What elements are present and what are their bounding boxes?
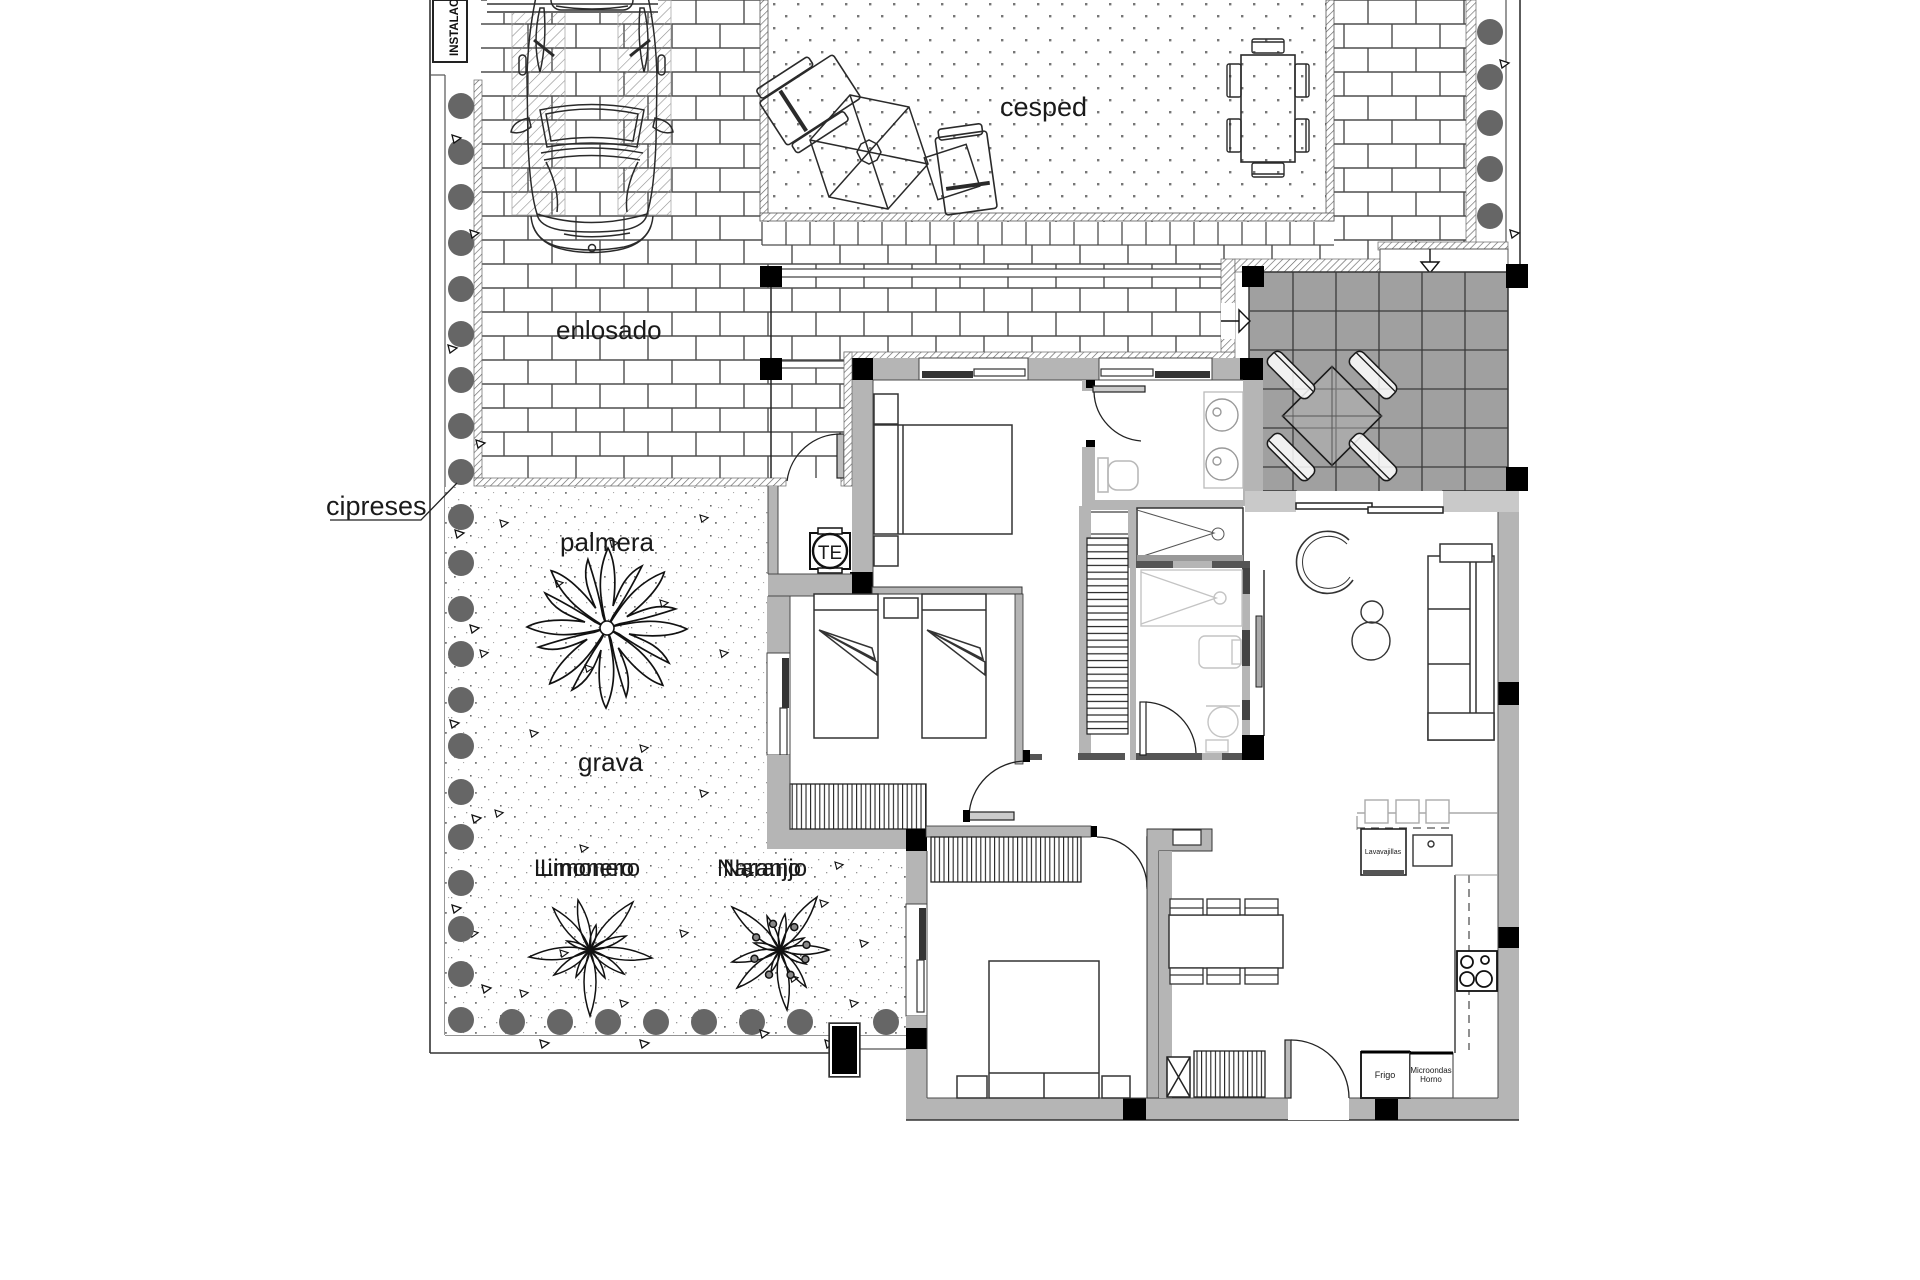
svg-text:grava: grava bbox=[578, 747, 644, 777]
svg-text:cesped: cesped bbox=[1000, 92, 1087, 122]
svg-text:Naranjo: Naranjo bbox=[723, 855, 807, 882]
svg-text:palmera: palmera bbox=[560, 527, 654, 557]
svg-text:Frigo: Frigo bbox=[1375, 1070, 1396, 1080]
svg-text:INSTALACIO: INSTALACIO bbox=[449, 0, 461, 56]
svg-text:Lavavajillas: Lavavajillas bbox=[1365, 849, 1402, 856]
svg-text:enlosado: enlosado bbox=[556, 315, 662, 345]
svg-text:Horno: Horno bbox=[1420, 1075, 1442, 1084]
svg-text:TE: TE bbox=[818, 543, 842, 564]
svg-text:cipreses: cipreses bbox=[326, 491, 427, 521]
svg-text:Microondas: Microondas bbox=[1410, 1066, 1451, 1075]
svg-text:Limonero: Limonero bbox=[540, 855, 640, 882]
